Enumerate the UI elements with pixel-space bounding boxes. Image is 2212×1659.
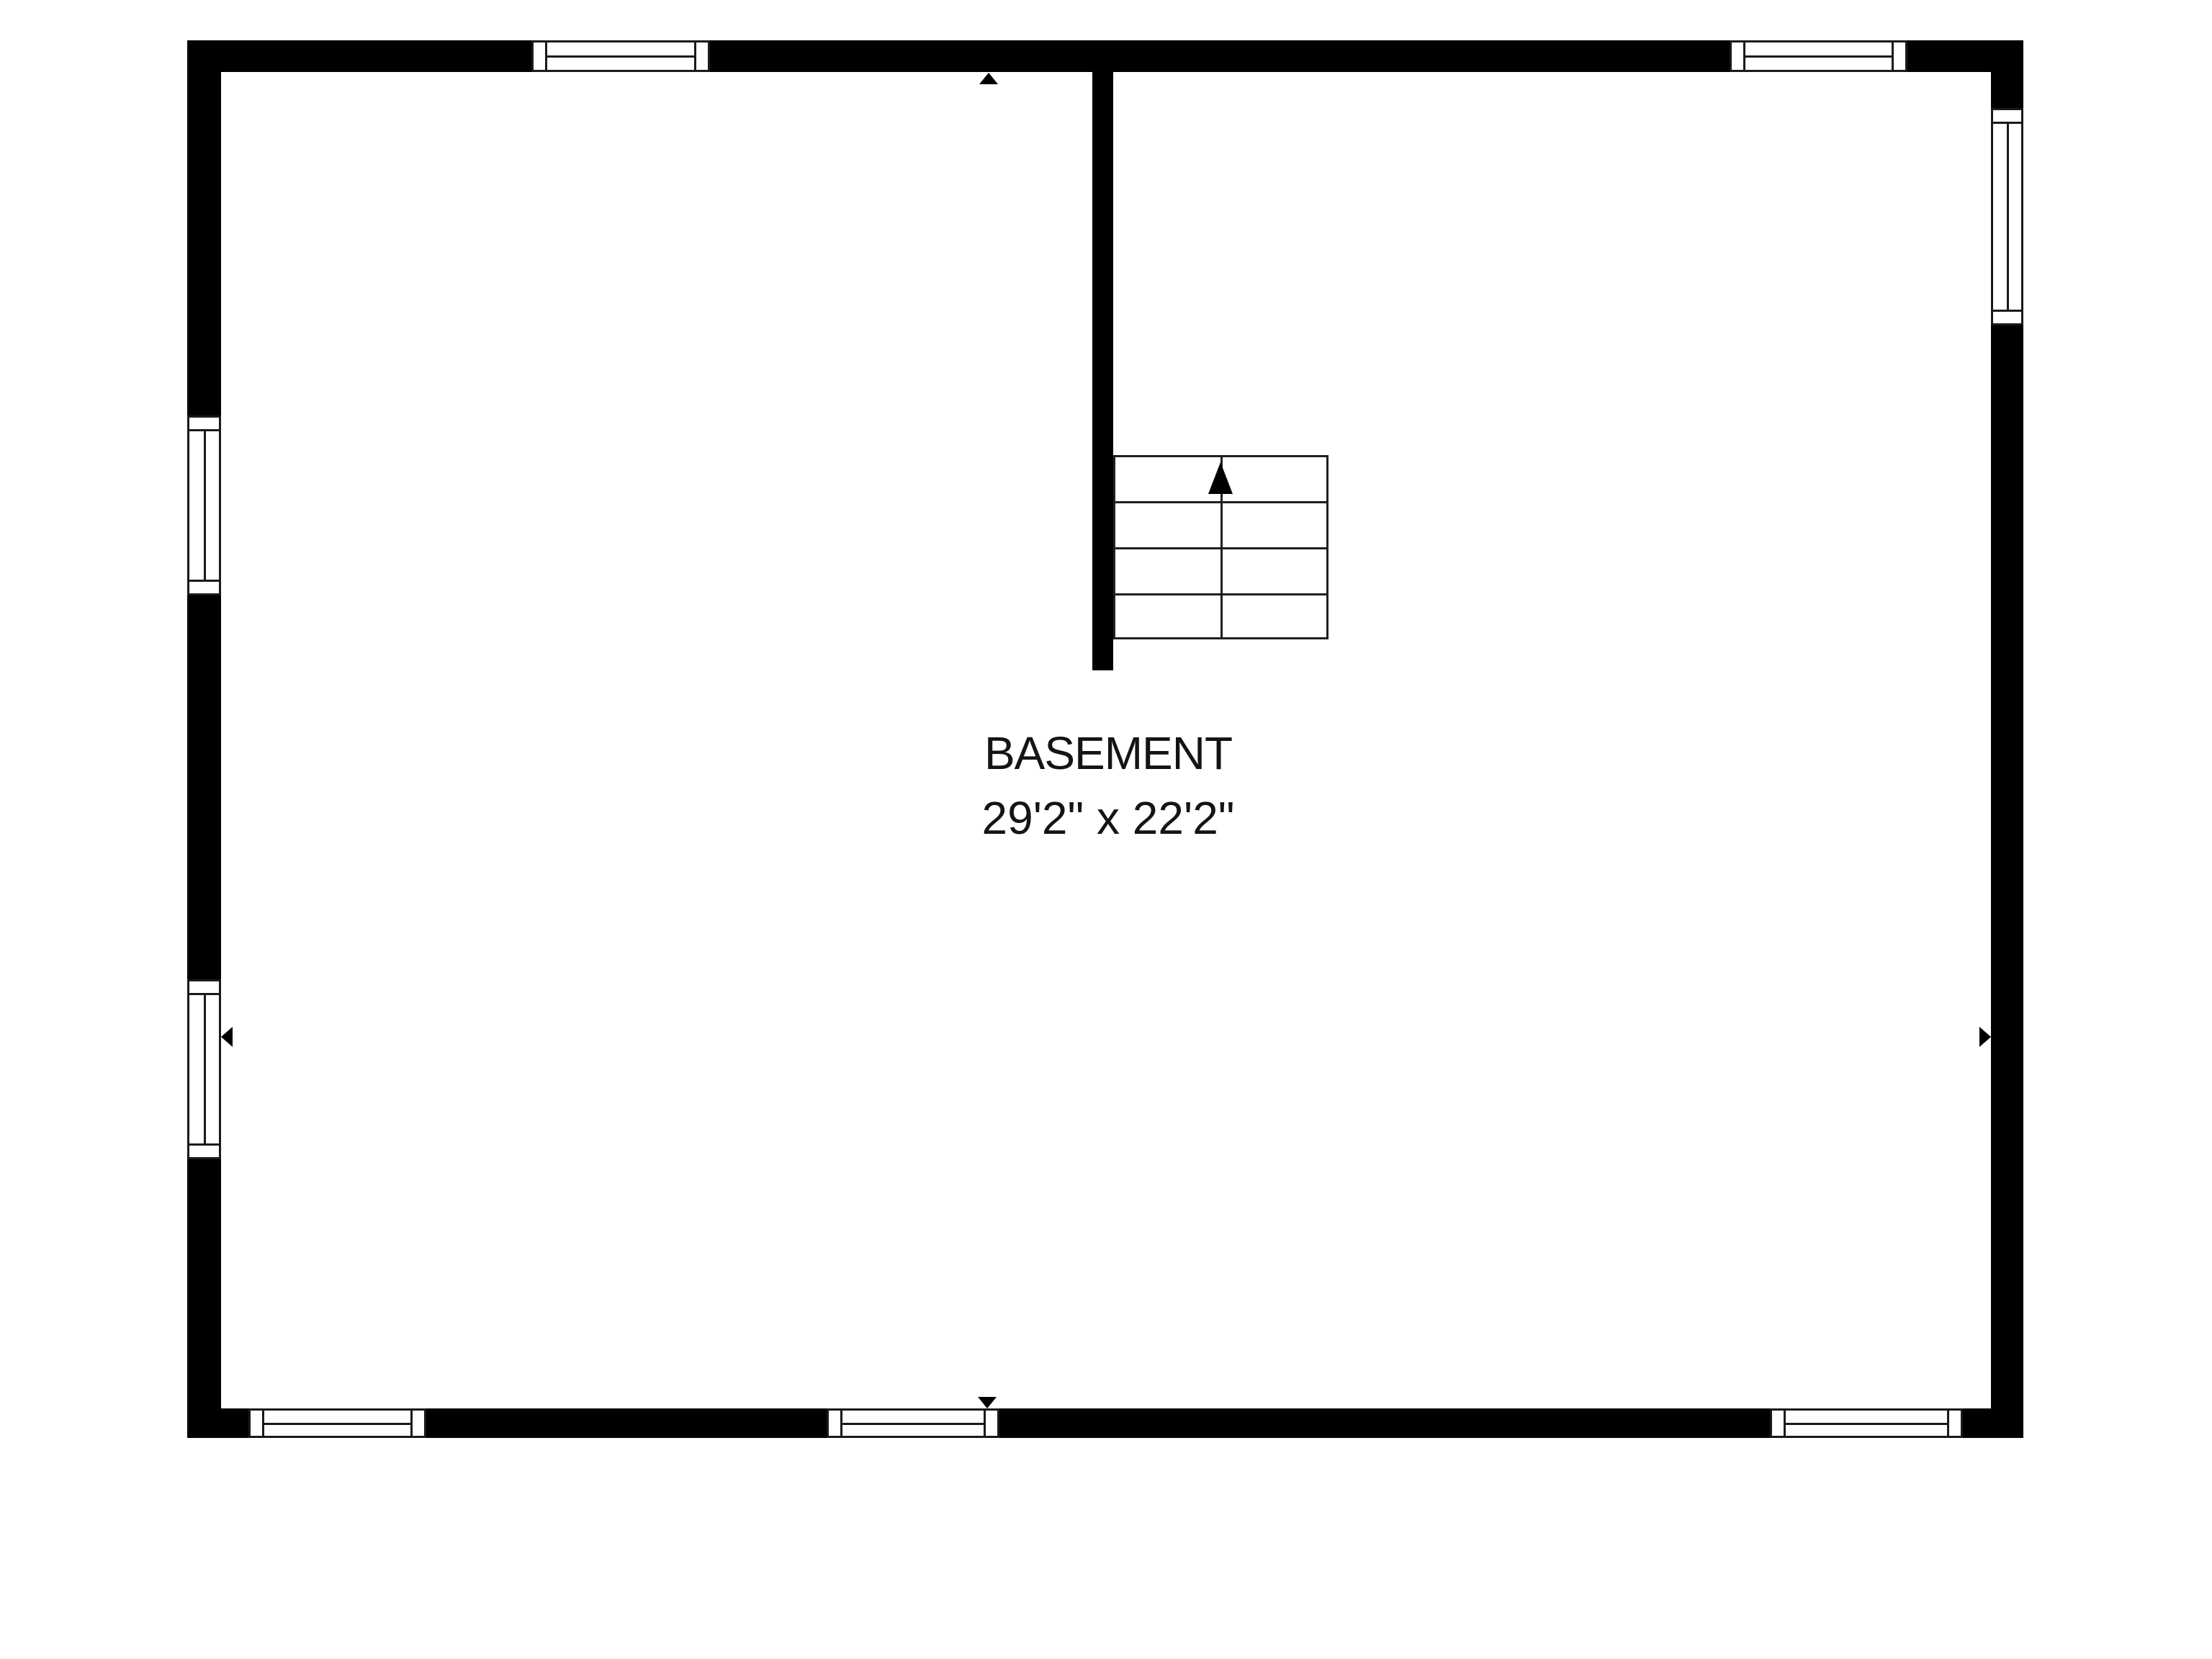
- exterior-wall-left: [187, 40, 221, 1438]
- window-left-upper: [187, 415, 221, 595]
- window-frame-line: [410, 1411, 413, 1436]
- window-bottom-center: [827, 1408, 999, 1438]
- window-left-lower: [187, 979, 221, 1159]
- interior-wall-stairwell: [1092, 72, 1113, 670]
- window-top-left: [531, 40, 710, 72]
- window-glass-line: [842, 1423, 984, 1425]
- room-label: BASEMENT: [820, 730, 1396, 776]
- window-bottom-right: [1770, 1408, 1963, 1438]
- left-arrow-icon: [221, 1027, 233, 1047]
- window-glass-line: [1786, 1423, 1947, 1425]
- floor-plan-canvas: BASEMENT 29'2" x 22'2": [0, 0, 2212, 1659]
- window-right-upper: [1991, 108, 2023, 325]
- window-frame-line: [189, 1143, 219, 1146]
- right-arrow-icon: [1979, 1027, 1991, 1047]
- room-dimensions: 29'2" x 22'2": [820, 795, 1396, 841]
- window-glass-line: [2007, 124, 2009, 310]
- window-frame-line: [984, 1411, 986, 1436]
- window-glass-line: [264, 1423, 410, 1425]
- window-frame-line: [1947, 1411, 1949, 1436]
- window-frame-line: [1892, 42, 1894, 70]
- window-bottom-left: [248, 1408, 426, 1438]
- window-frame-line: [694, 42, 696, 70]
- window-glass-line: [204, 995, 206, 1143]
- up-arrow-icon: [979, 73, 998, 84]
- exterior-wall-bottom: [187, 1408, 2023, 1438]
- window-frame-line: [189, 580, 219, 582]
- window-glass-line: [547, 55, 694, 58]
- window-frame-line: [1993, 310, 2021, 312]
- staircase: [1113, 455, 1328, 639]
- stairs-up-arrow-icon: [1208, 462, 1233, 494]
- window-glass-line: [1745, 55, 1892, 58]
- window-glass-line: [204, 431, 206, 580]
- down-arrow-icon: [978, 1397, 997, 1408]
- window-top-right: [1730, 40, 1907, 72]
